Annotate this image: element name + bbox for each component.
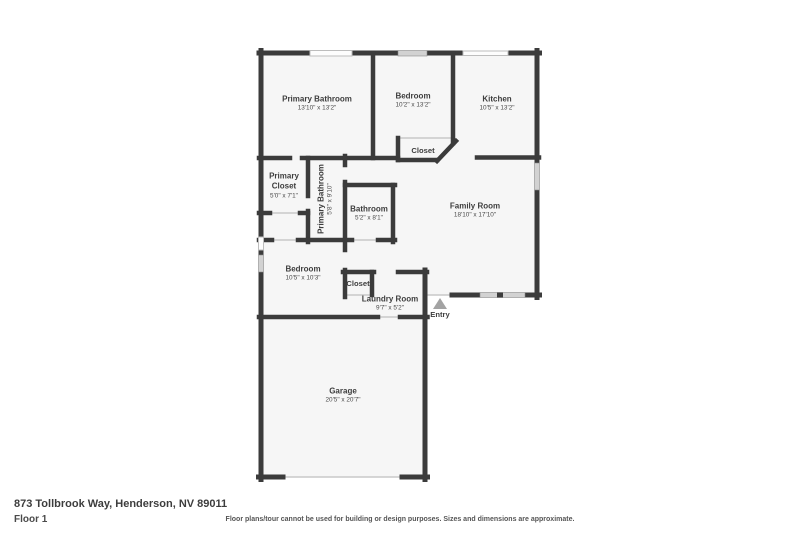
sliding-door [480, 293, 525, 298]
property-address: 873 Tollbrook Way, Henderson, NV 89011 [14, 498, 227, 510]
floor-plan-page: Primary Bathroom 13'10" x 13'2" Bedroom … [0, 0, 800, 533]
window-closet-left [259, 237, 264, 250]
entry-arrow-icon [433, 298, 447, 309]
floor-plan-drawing [0, 0, 800, 533]
disclaimer-text: Floor plans/tour cannot be used for buil… [0, 516, 800, 523]
building-footprint [261, 53, 537, 477]
window-top-left [310, 51, 352, 57]
window-bedroom-top [398, 51, 427, 57]
window-family-right [535, 163, 540, 190]
window-kitchen-top [463, 51, 508, 56]
window-bedroom-left [259, 255, 264, 272]
entry-label: Entry [430, 310, 449, 319]
